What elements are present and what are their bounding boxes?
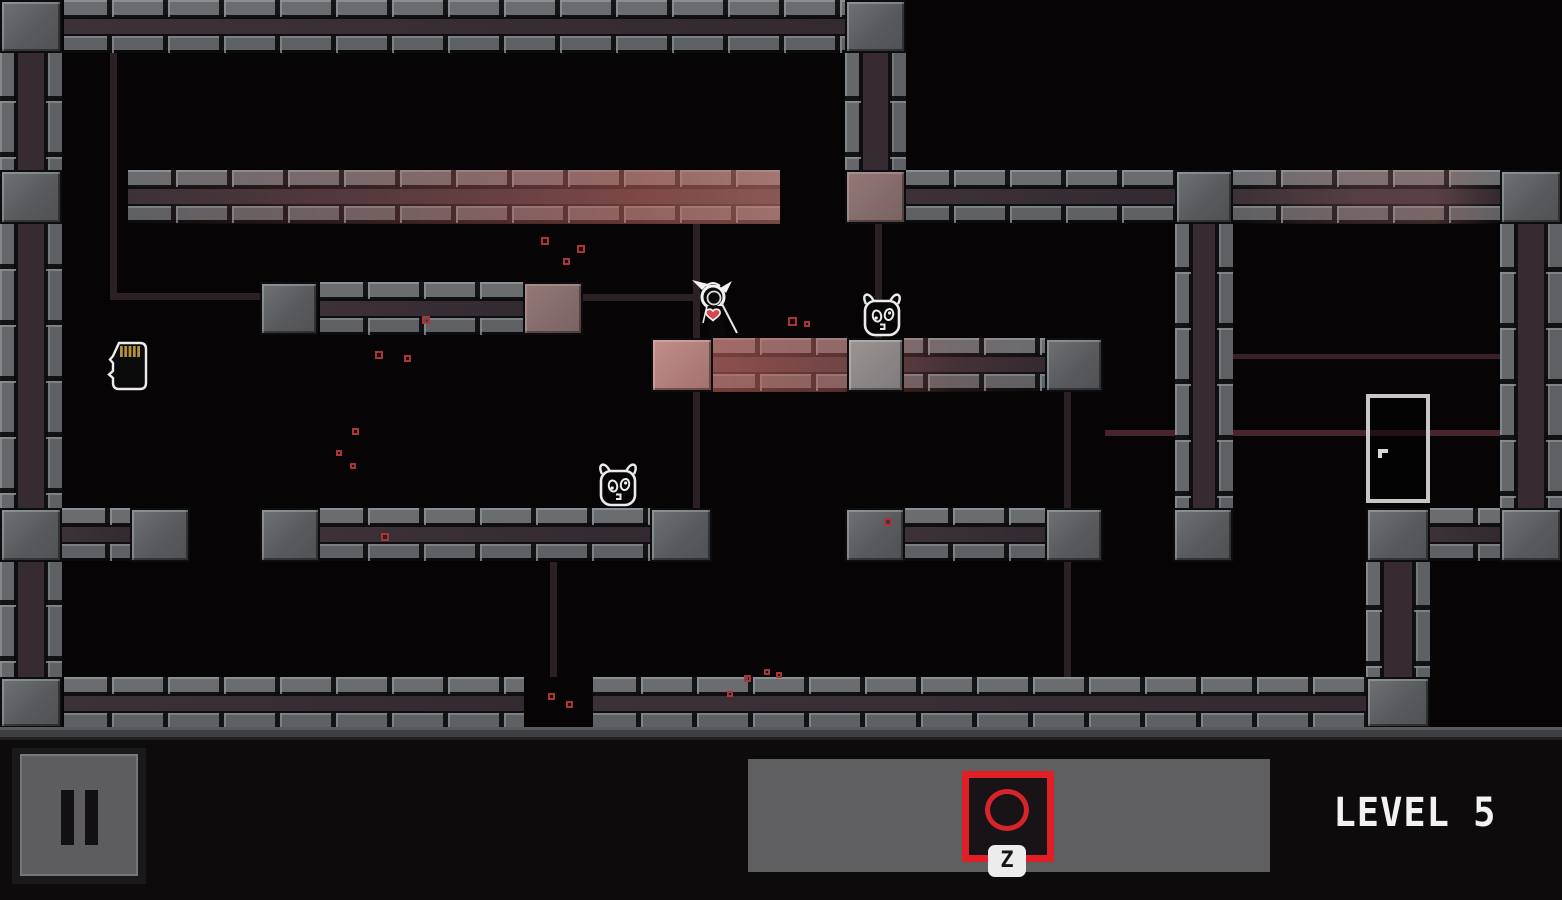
action-panel: Z — [748, 759, 1270, 872]
sd-card-pickup — [107, 341, 149, 391]
red-particle — [884, 518, 892, 526]
solid-block — [650, 508, 712, 562]
red-particle — [336, 450, 342, 456]
solid-block — [1500, 170, 1562, 224]
girder-beam — [64, 0, 845, 53]
girder-beam — [905, 508, 1045, 562]
pipe-wire — [110, 293, 267, 300]
girder-column — [1500, 224, 1562, 508]
solid-block — [1500, 508, 1562, 562]
girder-beam — [1233, 170, 1500, 224]
solid-block — [523, 282, 583, 335]
girder-beam — [906, 170, 1175, 224]
enemy-creature — [594, 462, 642, 508]
girder-beam — [62, 508, 130, 562]
red-particle — [404, 355, 411, 362]
pipe-wire — [550, 562, 557, 677]
red-particle — [381, 533, 389, 541]
solid-block — [845, 0, 906, 53]
red-particle — [776, 672, 782, 678]
red-particle — [548, 693, 555, 700]
red-particle — [541, 237, 549, 245]
solid-block — [0, 170, 62, 224]
pipe-wire — [1064, 392, 1071, 508]
floor-edge — [0, 727, 1562, 741]
pause-button-frame — [12, 748, 146, 884]
solid-block — [845, 170, 906, 224]
player-character — [688, 277, 742, 341]
solid-block — [1366, 677, 1430, 728]
red-particle — [350, 463, 356, 469]
solid-block — [845, 508, 905, 562]
girder-column — [1366, 562, 1430, 677]
red-particle — [788, 317, 797, 326]
pause-icon — [61, 790, 74, 845]
red-particle — [422, 316, 430, 324]
girder-beam — [64, 677, 524, 728]
level-label: LEVEL 5 — [1325, 789, 1505, 835]
pipe-wire — [110, 53, 117, 296]
girder-beam — [1430, 508, 1500, 562]
red-particle — [727, 691, 733, 697]
red-particle — [577, 245, 585, 253]
exit-door — [1366, 394, 1430, 503]
pipe-wire — [1105, 430, 1503, 436]
pipe-wire — [1064, 562, 1071, 677]
solid-block — [0, 508, 62, 562]
solid-block — [651, 338, 713, 392]
solid-block — [130, 508, 190, 562]
solid-block — [1045, 338, 1103, 392]
girder-beam — [320, 508, 650, 562]
pipe-wire — [583, 294, 698, 301]
solid-block — [1366, 508, 1430, 562]
red-particle — [744, 675, 751, 682]
enemy-creature — [858, 292, 906, 338]
circle-icon — [985, 789, 1029, 831]
solid-block — [0, 677, 62, 728]
solid-block — [1175, 170, 1233, 224]
red-particle — [563, 258, 570, 265]
red-particle — [566, 701, 573, 708]
girder-column — [845, 53, 906, 170]
hud-bar: Z LEVEL 5 — [0, 740, 1562, 900]
red-particle — [804, 321, 810, 327]
solid-block — [0, 0, 62, 53]
pause-button[interactable] — [20, 754, 138, 876]
game-screen: Z LEVEL 5 — [0, 0, 1562, 900]
solid-block — [260, 282, 318, 335]
solid-block — [260, 508, 320, 562]
girder-beam — [320, 282, 523, 335]
pipe-wire — [693, 392, 700, 508]
girder-column — [0, 53, 62, 677]
pause-icon — [85, 790, 98, 845]
door-handle-icon — [1378, 449, 1382, 458]
girder-beam — [593, 677, 1366, 728]
red-particle — [375, 351, 383, 359]
red-particle — [764, 669, 770, 675]
red-particle — [352, 428, 359, 435]
solid-block — [1045, 508, 1103, 562]
playfield — [0, 0, 1562, 740]
action-key-hint: Z — [988, 845, 1026, 877]
solid-block — [1173, 508, 1233, 562]
solid-block — [847, 338, 904, 392]
pipe-wire — [1233, 354, 1500, 359]
girder-beam — [128, 170, 780, 224]
girder-column — [1175, 224, 1233, 508]
